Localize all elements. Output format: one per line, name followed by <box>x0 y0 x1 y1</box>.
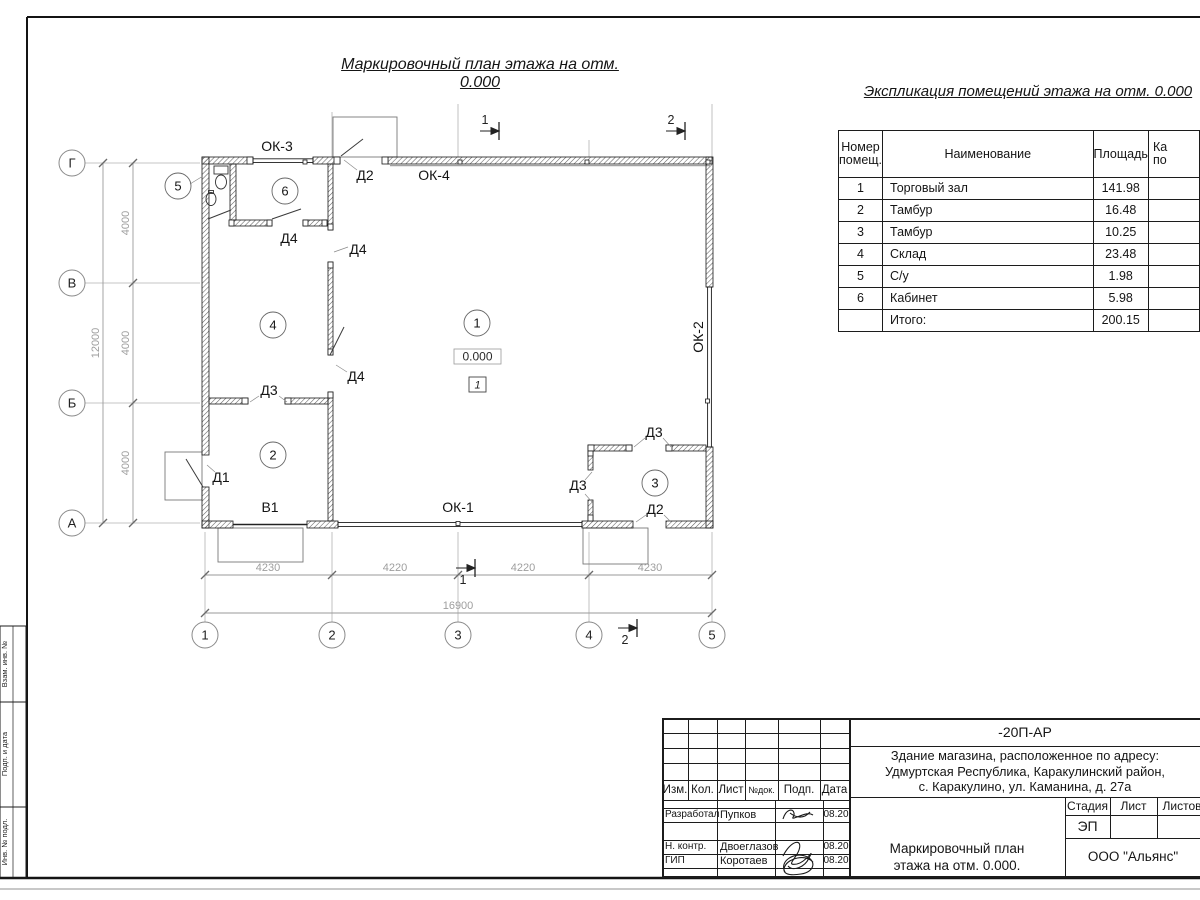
axis-row-a: А <box>68 516 77 531</box>
toilet-icon <box>214 166 228 189</box>
axis-col-5: 5 <box>708 628 715 643</box>
dim-4000-c: 4000 <box>120 451 132 475</box>
name-gip: Коротаев <box>720 854 775 868</box>
table-row: 4Склад23.48 <box>839 244 1200 266</box>
room-5-number: 5 <box>174 179 181 194</box>
axis-col-3: 3 <box>454 628 461 643</box>
label-d2-b: Д2 <box>646 501 663 517</box>
axis-row-g: Г <box>68 156 75 171</box>
entrance-porches <box>165 117 648 564</box>
side-stamp: Взам. инв. № Подп. и дата Инв. № подл. <box>0 626 26 878</box>
stage-label: Стадия <box>1065 797 1110 815</box>
axis-col-4: 4 <box>585 628 592 643</box>
project-address: Здание магазина, расположенное по адресу… <box>852 748 1198 795</box>
label-leaders <box>190 160 671 522</box>
date-developer: 08.20 <box>823 808 849 822</box>
door-leaves <box>186 139 363 487</box>
dim-4230-a: 4230 <box>256 562 280 574</box>
role-ncontrol: Н. контр. <box>665 840 717 854</box>
window-markers <box>303 160 710 526</box>
dim-4000-a: 4000 <box>120 211 132 235</box>
side-stamp-label-2: Подп. и дата <box>0 731 9 776</box>
section-2-label-bottom: 2 <box>622 633 629 647</box>
date-gip: 08.20 <box>823 854 849 868</box>
company-name: ООО "Альянс" <box>1065 838 1200 876</box>
name-developer: Пупков <box>720 808 775 822</box>
dim-4220-a: 4220 <box>383 562 407 574</box>
room-2-number: 2 <box>269 448 276 463</box>
schedule-title: Экспликация помещений этажа на отм. 0.00… <box>862 83 1194 100</box>
table-row: 5С/у1.98 <box>839 266 1200 288</box>
side-stamp-label-3: Инв. № подл. <box>0 819 9 866</box>
col-category: Капо <box>1148 131 1199 178</box>
section-1-label-top: 1 <box>482 113 489 127</box>
label-d4-b: Д4 <box>349 241 366 257</box>
room-6-number: 6 <box>281 184 288 199</box>
axis-col-1: 1 <box>201 628 208 643</box>
label-d3-c: Д3 <box>645 424 662 440</box>
name-ncontrol: Двоеглазов <box>720 840 775 854</box>
header-kol: Кол. <box>688 780 717 800</box>
schedule-header-row: Номерпомещ. Наименование Площадь Капо <box>839 131 1200 178</box>
wall-end-caps <box>229 157 672 521</box>
svg-text:0.000: 0.000 <box>462 350 492 364</box>
floor-type-mark: 1 <box>469 377 486 392</box>
label-ok1: ОК-1 <box>442 499 474 515</box>
dimension-labels: 4230 4220 4220 4230 16900 4000 4000 4000… <box>90 211 662 612</box>
section-2-label-top: 2 <box>668 113 675 127</box>
col-room-number: Номерпомещ. <box>839 131 883 178</box>
label-d2-top: Д2 <box>356 167 373 183</box>
col-area: Площадь <box>1093 131 1148 178</box>
role-gip: ГИП <box>665 854 717 868</box>
header-ndok: №док. <box>745 780 778 800</box>
col-name: Наименование <box>883 131 1093 178</box>
drawing-title: Маркировочный план этажа на отм. 0.000. <box>849 840 1065 874</box>
header-izm: Изм. <box>662 780 688 800</box>
stage-value: ЭП <box>1065 815 1110 838</box>
dim-16900: 16900 <box>443 600 474 612</box>
room-3-number: 3 <box>651 476 658 491</box>
table-row: 2Тамбур16.48 <box>839 200 1200 222</box>
windows <box>253 157 713 528</box>
room-schedule-table: Номерпомещ. Наименование Площадь Капо 1Т… <box>838 130 1200 332</box>
title-block: Изм. Кол. Лист №док. Подп. Дата Разработ… <box>662 718 1200 878</box>
dimension-lines <box>103 163 712 613</box>
elevation-mark: 0.000 <box>454 349 501 364</box>
label-ok4: ОК-4 <box>418 167 450 183</box>
dimension-ticks <box>99 159 716 617</box>
room-1-number: 1 <box>473 316 480 331</box>
dim-4000-b: 4000 <box>120 331 132 355</box>
sheet-label: Лист <box>1110 797 1157 815</box>
side-stamp-label-1: Взам. инв. № <box>0 641 9 687</box>
table-total-row: Итого:200.15 <box>839 310 1200 332</box>
doc-code: -20П-АР <box>849 718 1200 746</box>
section-1-label-bottom: 1 <box>460 573 467 587</box>
label-d3-a: Д3 <box>260 382 277 398</box>
signatures <box>775 804 823 878</box>
label-d3-b: Д3 <box>569 477 586 493</box>
plan-title: Маркировочный план этажа на отм. 0.000 <box>330 56 630 92</box>
label-d4-a: Д4 <box>280 230 297 246</box>
axis-col-2: 2 <box>328 628 335 643</box>
label-ok3: ОК-3 <box>261 138 293 154</box>
room-4-number: 4 <box>269 318 276 333</box>
label-v1: В1 <box>261 499 278 515</box>
header-list: Лист <box>717 780 745 800</box>
table-row: 1Торговый зал141.98 <box>839 178 1200 200</box>
axis-row-v: В <box>68 276 77 291</box>
axis-row-b: Б <box>68 396 77 411</box>
date-ncontrol: 08.20 <box>823 840 849 854</box>
header-data: Дата <box>820 780 849 800</box>
walls <box>202 157 713 528</box>
drawing-sheet: Взам. инв. № Подп. и дата Инв. № подл. 4… <box>0 0 1200 900</box>
table-row: 6Кабинет5.98 <box>839 288 1200 310</box>
sheets-label: Листов <box>1157 797 1200 815</box>
dim-12000: 12000 <box>90 328 102 359</box>
header-podp: Подп. <box>778 780 820 800</box>
label-d4-c: Д4 <box>347 368 364 384</box>
role-developer: Разработал <box>665 808 717 822</box>
svg-text:1: 1 <box>474 380 480 392</box>
label-ok2: ОК-2 <box>690 321 706 353</box>
dim-4220-b: 4220 <box>511 562 535 574</box>
label-d1: Д1 <box>212 469 229 485</box>
table-row: 3Тамбур10.25 <box>839 222 1200 244</box>
